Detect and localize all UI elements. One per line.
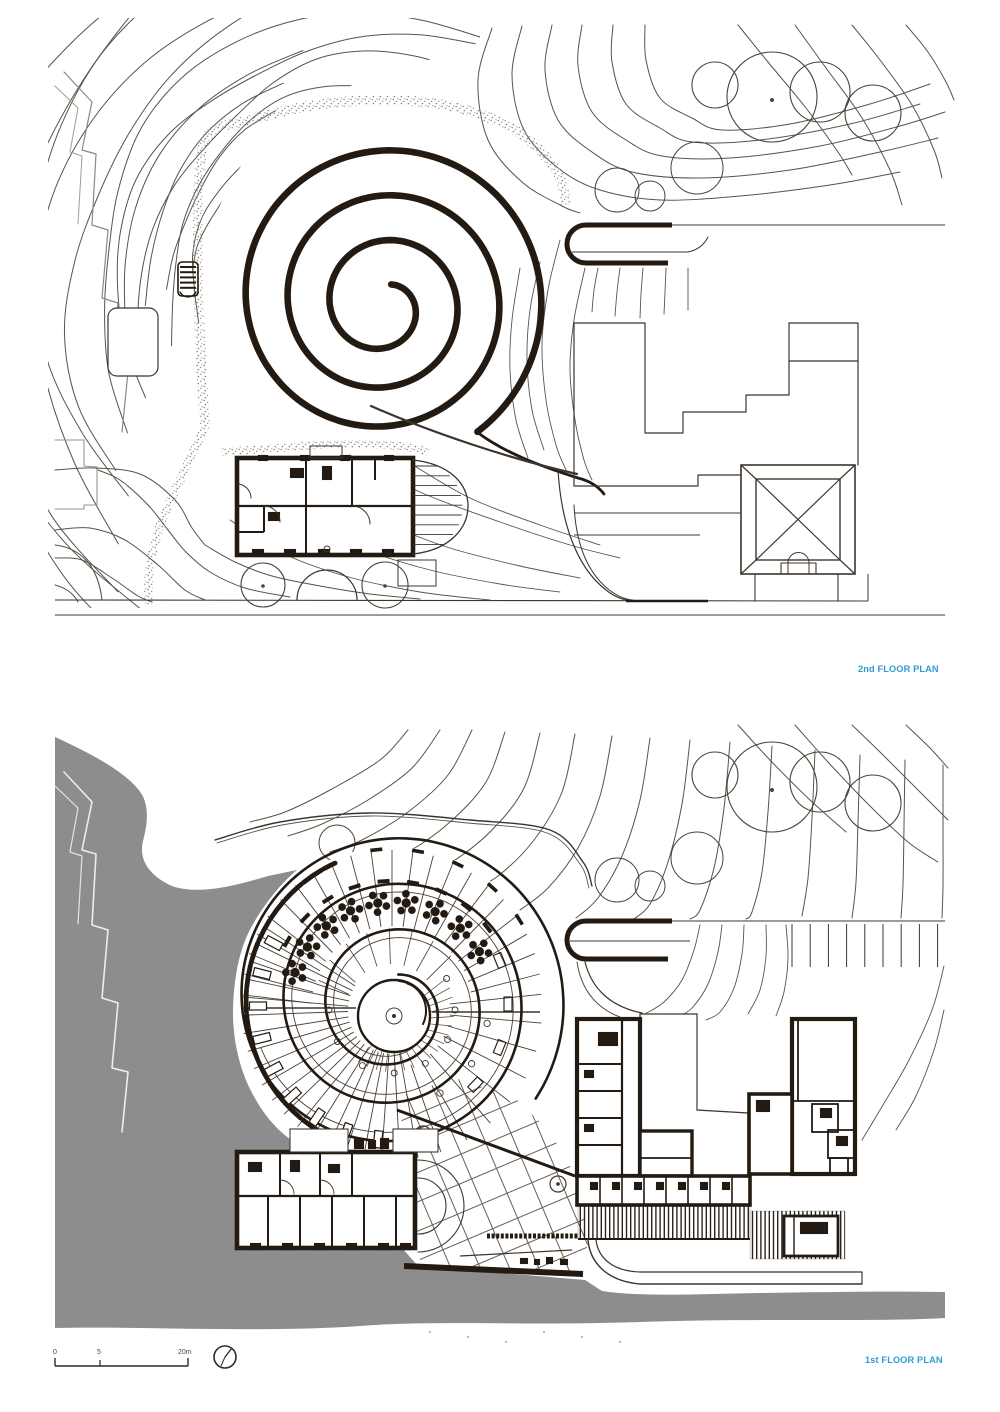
svg-text:2nd FLOOR PLAN: 2nd FLOOR PLAN (858, 664, 939, 674)
svg-text:5: 5 (97, 1349, 101, 1356)
svg-text:0: 0 (53, 1349, 57, 1356)
svg-text:1st FLOOR PLAN: 1st FLOOR PLAN (865, 1355, 943, 1365)
svg-text:20m: 20m (178, 1349, 192, 1356)
